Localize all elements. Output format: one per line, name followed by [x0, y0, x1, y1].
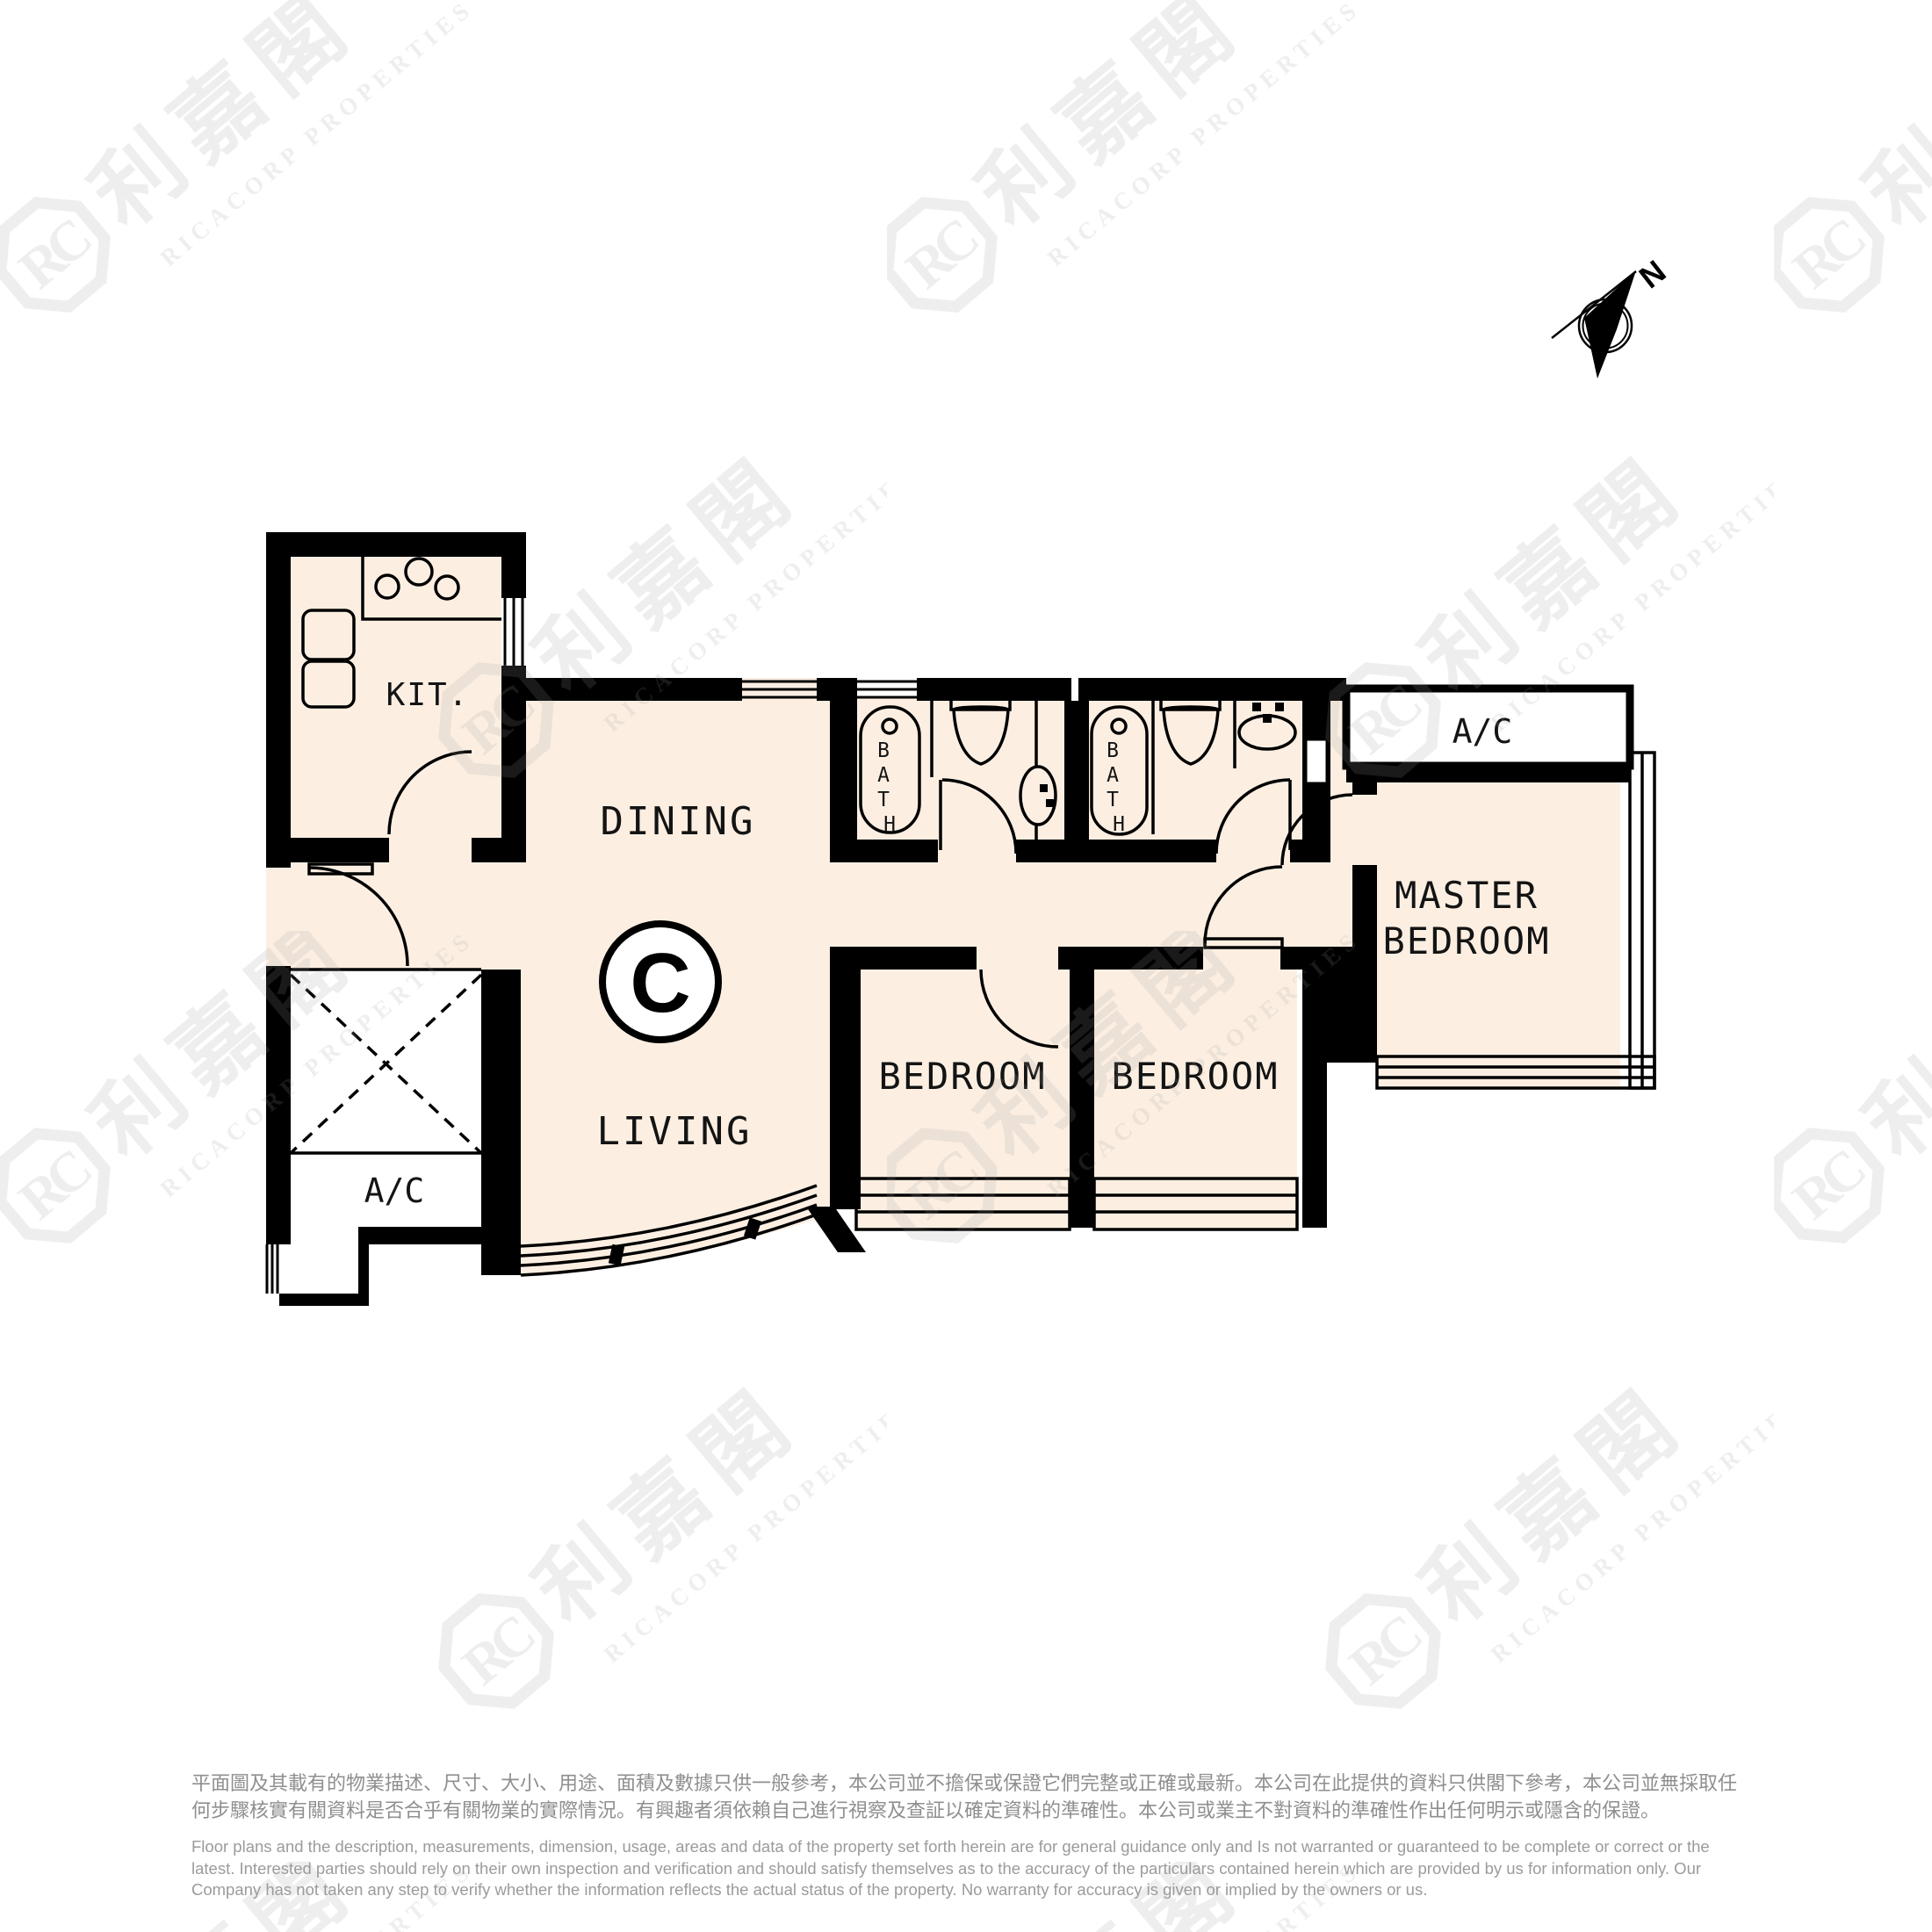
bathtub2-label: B A T H [1107, 739, 1131, 836]
ac-label-bottom-left: A/C [364, 1171, 425, 1210]
white-areas [291, 688, 1630, 1153]
bedroom1-window [856, 1179, 1070, 1229]
stove-burner-icon [406, 559, 432, 585]
bathtub-icon [861, 707, 919, 833]
disclaimer-en-line3: Company has not taken any step to verify… [191, 1879, 1737, 1901]
disclaimer-en-line2: latest. Interested parties should rely o… [191, 1858, 1737, 1880]
unit-badge-circle [602, 924, 718, 1040]
watermark-overlay [0, 0, 1932, 1932]
room-label-master-line2: BEDROOM [1382, 919, 1550, 962]
room-label-master-line1: MASTER [1395, 874, 1539, 917]
room-label-bedroom2: BEDROOM [1111, 1055, 1279, 1098]
fridge-icon [303, 610, 354, 660]
toilet-icon [1161, 698, 1220, 710]
disclaimer-zh-line1: 平面圖及其載有的物業描述、尺寸、大小、用途、面積及數據只供一般參考，本公司並不擔… [191, 1770, 1737, 1798]
doors [309, 752, 1352, 1047]
toilet-icon [951, 698, 1010, 710]
window-lines [267, 598, 917, 1294]
disclaimer: 平面圖及其載有的物業描述、尺寸、大小、用途、面積及數據只供一般參考，本公司並不擔… [191, 1770, 1737, 1901]
compass-north-icon: N [1552, 253, 1672, 378]
void-x-marks [291, 975, 481, 1153]
master-side-window [1630, 753, 1654, 1088]
disclaimer-english: Floor plans and the description, measure… [191, 1836, 1737, 1901]
bathtub-icon [1092, 707, 1147, 834]
room-label-kitchen: KIT. [386, 677, 470, 713]
ac-label-top-right: A/C [1453, 712, 1513, 751]
unit-label: C [630, 936, 690, 1030]
floorplan-canvas: RC 利嘉閣 RICACORP PROPERTIES RC 利嘉閣 RICACO… [0, 0, 1932, 1932]
stove-burner-icon [436, 576, 458, 599]
bath2-fixtures [1092, 698, 1327, 834]
compass-n-label: N [1633, 253, 1673, 295]
disclaimer-chinese: 平面圖及其載有的物業描述、尺寸、大小、用途、面積及數據只供一般參考，本公司並不擔… [191, 1770, 1737, 1824]
room-label-living: LIVING [597, 1109, 753, 1154]
basin-icon [1239, 716, 1295, 749]
bath1-fixtures [861, 698, 1056, 840]
duct-niche [1306, 739, 1327, 783]
structure-lines: N [267, 253, 1672, 1294]
bathtub1-label: B A T H [877, 739, 902, 836]
disclaimer-en-line1: Floor plans and the description, measure… [191, 1836, 1737, 1858]
bedroom2-window [1094, 1179, 1297, 1229]
master-bottom-window [1377, 1056, 1654, 1088]
stove-burner-icon [376, 575, 399, 598]
fridge-icon [303, 661, 354, 707]
room-label-bedroom1: BEDROOM [878, 1055, 1046, 1098]
walls [266, 532, 1630, 1306]
basin-icon [1020, 767, 1056, 825]
floor-fills [266, 557, 1620, 1275]
disclaimer-zh-line2: 何步驟核實有關資料是否合乎有關物業的實際情況。有興趣者須依賴自己進行視察及查証以… [191, 1798, 1737, 1825]
room-label-dining: DINING [601, 799, 756, 844]
kitchen-fixtures [303, 557, 501, 707]
bay-window [521, 1186, 817, 1275]
